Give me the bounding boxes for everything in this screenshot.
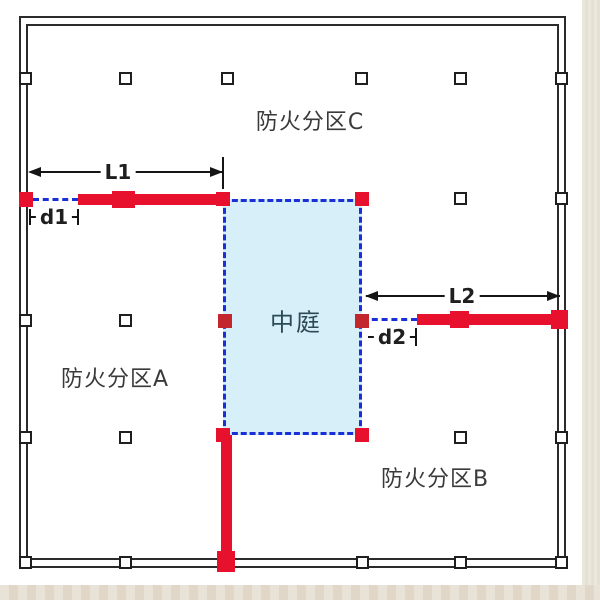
- column: [19, 431, 32, 444]
- fire-shutter-atrium-top-left: [216, 192, 230, 206]
- column: [119, 72, 132, 85]
- column: [355, 72, 368, 85]
- column: [454, 72, 467, 85]
- fire-shutter-atrium-bottom-left: [216, 428, 230, 442]
- fire-shutter-atrium-bottom-right: [355, 428, 369, 442]
- fire-wall-right-end-block: [551, 310, 568, 329]
- column: [555, 556, 568, 569]
- fire-wall-top-thick-block: [112, 191, 135, 208]
- column: [454, 192, 467, 205]
- fire-wall-right-segment: [417, 314, 565, 325]
- column: [19, 72, 32, 85]
- zone-b-label: 防火分区B: [381, 461, 489, 493]
- dim-L2-arrow-right-icon: [547, 291, 560, 301]
- opening-dashed-line-d2: [362, 318, 417, 321]
- fire-wall-bottom-segment: [221, 435, 232, 566]
- fire-wall-top-segment: [78, 194, 223, 205]
- column: [555, 192, 568, 205]
- column: [454, 556, 467, 569]
- zone-a-label: 防火分区A: [61, 361, 169, 393]
- column: [356, 556, 369, 569]
- dim-L2-label: L2: [445, 286, 480, 306]
- opening-dashed-line-d1: [33, 198, 78, 201]
- column: [555, 72, 568, 85]
- column: [119, 431, 132, 444]
- dim-d2-label: d2: [374, 327, 410, 347]
- fire-wall-right-thick-block: [450, 311, 469, 328]
- page-margin-right: [582, 0, 600, 600]
- dim-d1-tick-right: [77, 209, 79, 225]
- dim-L1-extension-tick: [222, 157, 224, 189]
- dim-d1-tick-left: [29, 209, 31, 225]
- column: [555, 431, 568, 444]
- column: [221, 72, 234, 85]
- fire-shutter-atrium-mid-left: [218, 314, 232, 328]
- dim-d1-label: d1: [36, 207, 72, 227]
- column: [119, 556, 132, 569]
- fire-shutter-left-wall: [19, 192, 33, 207]
- column: [19, 314, 32, 327]
- atrium-label: 中庭: [270, 303, 322, 338]
- dim-L1-label: L1: [101, 162, 136, 182]
- dim-d2-tick-right: [415, 328, 417, 346]
- fire-shutter-atrium-top-right: [355, 192, 369, 206]
- dim-L1-arrow-left-icon: [28, 167, 41, 177]
- column: [119, 314, 132, 327]
- zone-c-label: 防火分区C: [256, 104, 364, 136]
- column: [454, 431, 467, 444]
- fire-shutter-atrium-mid-right: [355, 314, 369, 328]
- dim-L2-arrow-left-icon: [365, 291, 378, 301]
- fire-wall-bottom-end-block: [217, 551, 235, 572]
- page-margin-bottom: [0, 585, 600, 600]
- column: [19, 556, 32, 569]
